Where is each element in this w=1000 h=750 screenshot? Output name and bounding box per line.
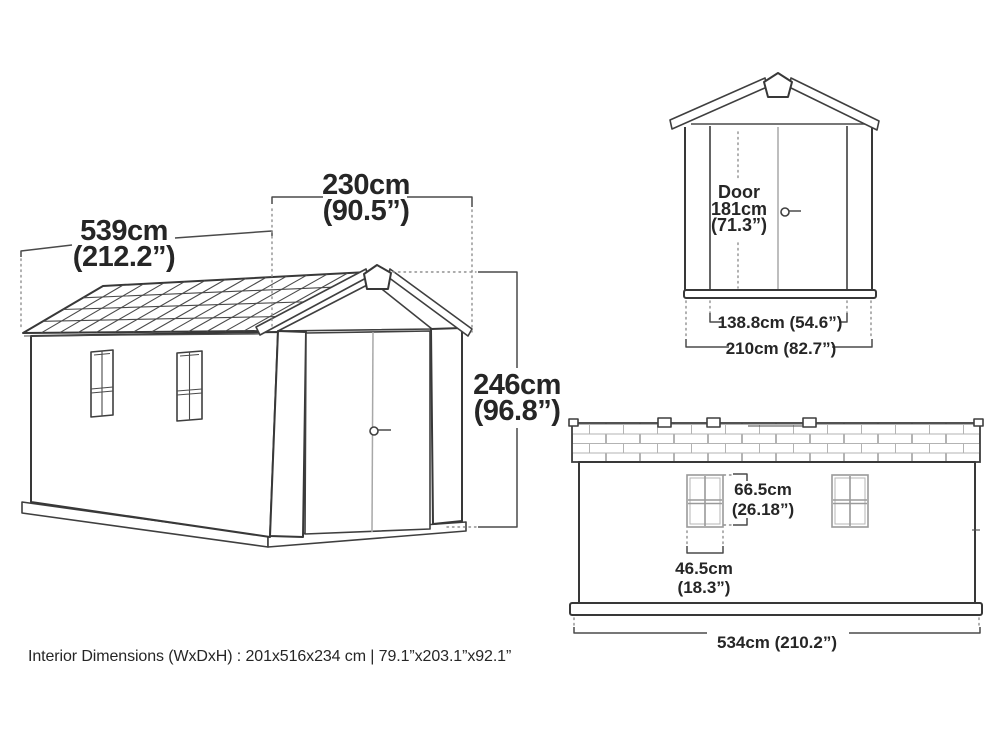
window-height-label: 66.5cm (26.18”) [732, 480, 794, 520]
dim-width-label: 230cm (90.5”) [322, 172, 410, 224]
side-base [570, 603, 982, 615]
shed-dimension-diagram: 539cm (212.2”) 230cm (90.5”) 246cm (96.8… [0, 0, 1000, 750]
side-window-2 [177, 351, 202, 421]
dim-height-label: 246cm (96.8”) [473, 372, 561, 424]
window-width-label: 46.5cm (18.3”) [675, 559, 733, 597]
side-view-drawing [550, 400, 1000, 660]
roof-cap [364, 265, 391, 289]
door-handle [781, 208, 801, 216]
side-window-1 [91, 350, 113, 417]
front-roof [670, 73, 879, 130]
side-roof-band [569, 418, 983, 462]
shed-side-wall [31, 332, 278, 537]
front-right-post [431, 328, 462, 524]
shed-doors [305, 331, 430, 534]
door-height-label: Door 181cm (71.3”) [711, 184, 767, 234]
door-width-label: 138.8cm (54.6”) [718, 314, 843, 331]
side-window-2 [832, 475, 868, 527]
side-window-1 [687, 475, 723, 527]
interior-dimensions-text: Interior Dimensions (WxDxH) : 201x516x23… [28, 648, 511, 666]
front-base [684, 290, 876, 298]
dim-length-label: 539cm (212.2”) [73, 218, 175, 270]
front-overall-width-label: 210cm (82.7”) [726, 340, 837, 357]
roof-cap [764, 73, 792, 97]
side-overall-length-label: 534cm (210.2”) [717, 634, 837, 651]
dim-overall-length-lines [574, 618, 980, 633]
